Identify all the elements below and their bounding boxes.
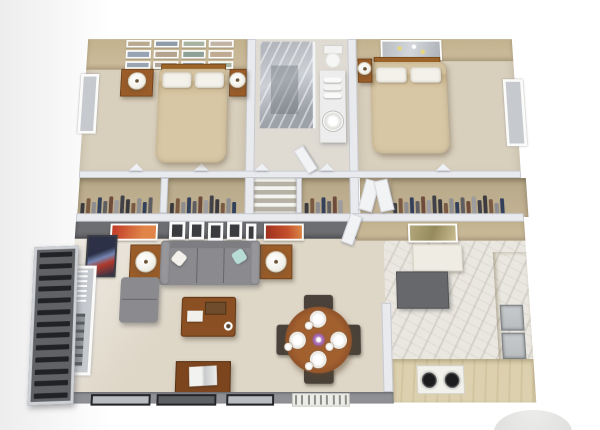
- floor-plan: [54, 32, 546, 413]
- toilet-bowl: [325, 53, 340, 68]
- wall-art-olive: [408, 224, 458, 243]
- door-marker-2: [194, 163, 209, 170]
- closet-2: [167, 178, 250, 217]
- gallery-frame: [209, 50, 234, 58]
- round-sink: [323, 111, 343, 130]
- bed2-pillow-right: [410, 67, 441, 82]
- grate-bar: [320, 395, 322, 404]
- grate-bar: [332, 395, 334, 404]
- shelf-cube: [169, 221, 186, 239]
- gallery-frame: [126, 40, 151, 48]
- gallery-frame: [181, 50, 206, 58]
- modular-wall-shelf: [169, 223, 257, 238]
- stove-burner: [444, 372, 460, 388]
- door-marker-3: [254, 163, 269, 170]
- hanging-garment: [432, 196, 437, 216]
- gallery-frame: [181, 40, 206, 48]
- gallery-frame: [209, 40, 234, 48]
- gallery-frame: [153, 50, 178, 58]
- bedroom2-window: [503, 79, 528, 146]
- linen-closet-shelves: [254, 178, 296, 213]
- closet-4: [390, 178, 529, 217]
- closet-divider-2: [296, 178, 302, 213]
- flower-centerpiece: [313, 334, 325, 346]
- stove-burners: [416, 365, 465, 394]
- side-dish: [284, 343, 292, 351]
- stove-burner: [422, 372, 437, 388]
- tv: [189, 365, 217, 386]
- railing-slat: [39, 263, 72, 269]
- hanging-garment: [120, 196, 125, 216]
- coffee-table-book: [187, 311, 203, 322]
- bed1-pillow-left: [162, 72, 192, 88]
- wall-bedrooms-south: [79, 171, 521, 178]
- gallery-frame: [125, 61, 150, 69]
- shelf-cube: [189, 221, 205, 239]
- railing-slat: [34, 380, 68, 386]
- bed2-lamp: [358, 62, 372, 75]
- gallery-frame: [154, 40, 179, 48]
- railing-slat: [40, 252, 73, 258]
- chaise-seam: [122, 299, 157, 300]
- railing-slat: [35, 356, 69, 362]
- closet-3: [302, 178, 355, 217]
- grate-bar: [314, 395, 316, 404]
- floorplan-render: [0, 0, 600, 430]
- gallery-frame: [126, 50, 151, 58]
- place-setting: [327, 329, 351, 353]
- front-glass-door: [156, 394, 216, 406]
- railing-slat: [36, 332, 70, 338]
- wall-closets-south: [76, 213, 524, 221]
- place-setting: [286, 329, 310, 353]
- shelf-cube: [246, 223, 257, 241]
- shower-glass-shadow: [271, 65, 298, 114]
- railing-slat: [37, 321, 70, 327]
- railing-slat: [36, 344, 70, 350]
- railing-slat: [38, 286, 71, 292]
- grate-bar: [339, 395, 341, 404]
- sofa-arm-right: [250, 241, 260, 285]
- towel-1: [324, 77, 342, 82]
- door-marker-5: [436, 163, 451, 170]
- grate-bar: [345, 395, 347, 404]
- grate-bar: [301, 395, 303, 404]
- door-marker-1: [129, 163, 144, 170]
- sofa-arm-left: [159, 241, 170, 285]
- stove: [416, 365, 465, 394]
- railing-slat: [39, 274, 72, 280]
- wall-art-orange: [264, 224, 304, 241]
- cutoff-dome-object: [494, 410, 572, 430]
- kitchen-dark-countertop: [396, 271, 449, 308]
- door-marker-4: [320, 163, 335, 170]
- bedroom1-window: [77, 74, 99, 134]
- railing-slat: [34, 392, 68, 398]
- side-dish: [325, 343, 333, 351]
- shelf-cube: [227, 221, 242, 239]
- living-lamp-right: [265, 251, 286, 272]
- balcony-railing: [27, 246, 78, 406]
- railing-slat: [37, 309, 70, 315]
- bed1-pillow-right: [195, 72, 224, 88]
- shelf-cube: [207, 223, 223, 241]
- closet-divider-1: [159, 178, 168, 213]
- coffee-table-tray: [205, 302, 227, 315]
- side-dish: [305, 362, 313, 370]
- bed2-pillow-left: [376, 67, 407, 82]
- front-window-2: [226, 394, 274, 406]
- railing-slat: [38, 297, 71, 303]
- dining-table: [285, 307, 352, 374]
- chaise: [119, 277, 160, 322]
- hanging-garment: [209, 196, 213, 216]
- closet-1: [77, 178, 165, 217]
- front-window-1: [90, 394, 150, 406]
- sofa-back: [170, 241, 250, 249]
- railing-slat: [35, 368, 69, 374]
- towel-2: [324, 85, 342, 90]
- sink-basin-2: [501, 333, 526, 359]
- sink-basin-1: [500, 305, 525, 331]
- hanging-garment: [483, 196, 488, 216]
- towel-3: [324, 93, 342, 98]
- grate-bar: [326, 395, 328, 404]
- grate-bar: [307, 395, 309, 404]
- kitchen-upper-cabinet: [412, 244, 463, 271]
- grate-bar: [295, 395, 297, 404]
- front-wall-grate: [292, 393, 350, 407]
